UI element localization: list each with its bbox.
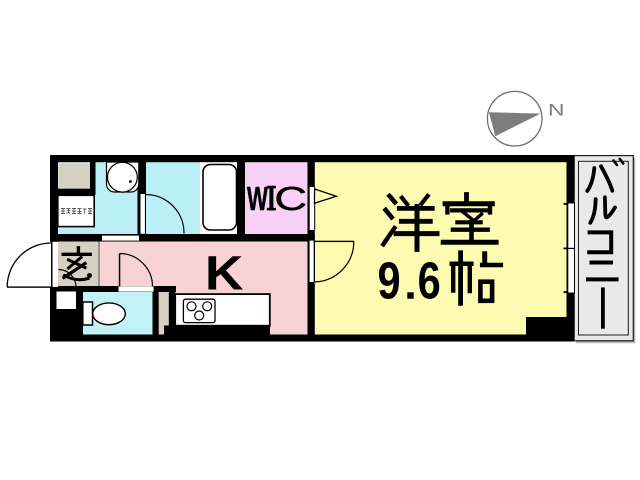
svg-text:6: 6 [418, 251, 441, 310]
svg-text:K: K [205, 246, 244, 300]
svg-text:C: C [274, 181, 307, 218]
svg-text:9: 9 [378, 251, 401, 310]
svg-text:W: W [247, 181, 268, 219]
svg-text:N: N [548, 101, 564, 119]
